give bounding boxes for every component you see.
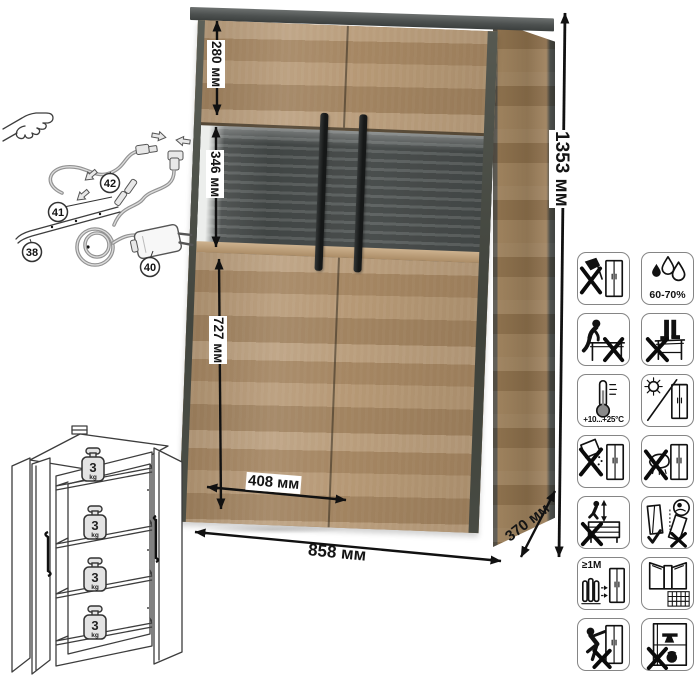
arrow-727 bbox=[219, 259, 221, 509]
dimension-top-section: 280 мм bbox=[207, 40, 225, 88]
dimension-total-height: 1353 мм bbox=[549, 130, 573, 208]
dimension-glass-section: 346 мм bbox=[206, 150, 224, 198]
dimension-bottom-section: 727 мм bbox=[209, 316, 227, 364]
dimension-arrows bbox=[0, 0, 700, 678]
arrow-1353 bbox=[559, 13, 565, 557]
